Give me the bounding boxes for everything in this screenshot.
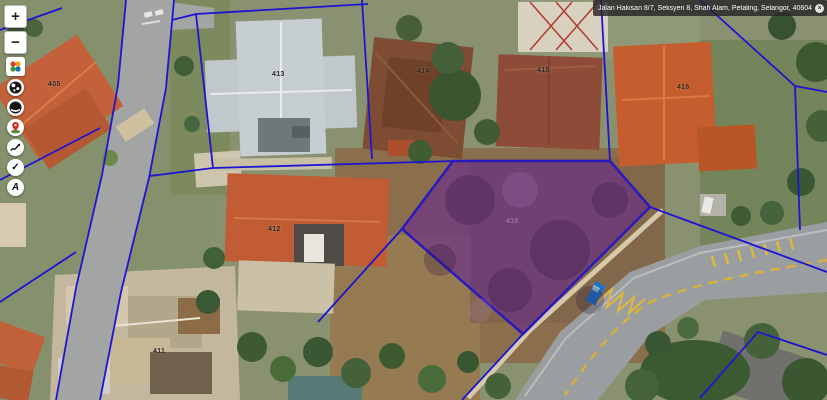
zoom-out-button[interactable]: − — [4, 31, 27, 54]
zoom-in-button[interactable]: + — [4, 5, 27, 28]
select-button[interactable]: ✓ — [7, 159, 24, 176]
parcel-label-405: 405 — [48, 81, 61, 88]
globe-button[interactable] — [7, 79, 24, 96]
map-application: 405 413 414 415 416 412 411 410 + − — [0, 0, 827, 400]
location-marker-button[interactable] — [7, 119, 24, 136]
patio — [237, 260, 335, 313]
close-icon[interactable]: × — [815, 4, 824, 13]
parcel-mottling — [502, 172, 538, 208]
letter-a-icon: A — [12, 183, 19, 193]
check-icon: ✓ — [11, 163, 19, 173]
red-pin-icon — [9, 121, 22, 134]
parcel-label-412: 412 — [268, 226, 281, 233]
address-text: Jalan Hakisan 8/7, Seksyen 8, Shah Alam,… — [598, 5, 812, 12]
dark-globe-icon — [9, 101, 22, 114]
parcel-label-414: 414 — [417, 68, 430, 75]
structure-left-edge — [0, 203, 26, 247]
construction-pit — [150, 352, 212, 394]
parcel-label-411: 411 — [153, 348, 165, 355]
sketch-button[interactable] — [7, 139, 24, 156]
address-bar: Jalan Hakisan 8/7, Seksyen 8, Shah Alam,… — [593, 0, 827, 16]
parcel-label-410: 410 — [506, 218, 519, 225]
parcel-label-413: 413 — [272, 71, 285, 78]
basemap-logo-button[interactable] — [6, 57, 25, 76]
label-button[interactable]: A — [7, 179, 24, 196]
parcel-label-416: 416 — [677, 84, 690, 91]
colorful-logo-icon — [9, 60, 22, 73]
parcel-label-415: 415 — [537, 67, 550, 74]
squiggle-icon — [9, 141, 22, 154]
globe-icon — [9, 81, 22, 94]
map-toolbar: + − — [4, 5, 27, 196]
path — [212, 157, 332, 171]
dark-globe-button[interactable] — [7, 99, 24, 116]
parcel-mottling — [468, 298, 492, 322]
map-canvas[interactable] — [0, 0, 827, 400]
